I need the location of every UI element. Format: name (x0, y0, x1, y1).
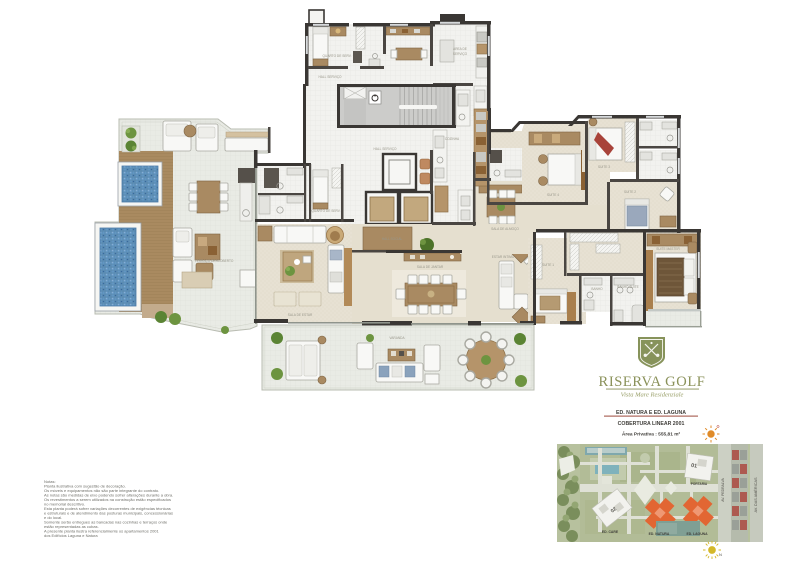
svg-text:HALL SOCIAL: HALL SOCIAL (382, 237, 403, 241)
svg-text:QUARTO DE SERV.: QUARTO DE SERV. (312, 209, 341, 213)
svg-text:SERVIÇO: SERVIÇO (453, 52, 468, 56)
svg-text:HALL SERVIÇO: HALL SERVIÇO (318, 75, 342, 79)
svg-text:RISERVA GOLF: RISERVA GOLF (599, 374, 706, 390)
svg-text:BANHO SUITE: BANHO SUITE (617, 285, 639, 289)
svg-text:ED. NATURA E ED. LAGUNA: ED. NATURA E ED. LAGUNA (616, 410, 686, 416)
svg-text:COBERTURA LINEAR 2001: COBERTURA LINEAR 2001 (618, 421, 685, 427)
svg-text:SUITE 2: SUITE 2 (624, 190, 636, 194)
svg-text:01: 01 (691, 463, 698, 470)
svg-text:ED. LAGUNA: ED. LAGUNA (686, 532, 708, 536)
svg-text:QUARTO DE SERV.: QUARTO DE SERV. (323, 54, 352, 58)
svg-text:N: N (719, 552, 722, 557)
svg-text:SUITE 4: SUITE 4 (547, 193, 559, 197)
svg-text:Área Privativa : 555,81 m²: Área Privativa : 555,81 m² (622, 431, 681, 438)
svg-text:dos Edifícios Laguna e Natura: dos Edifícios Laguna e Natura (44, 533, 98, 538)
svg-text:COZINHA: COZINHA (445, 137, 460, 141)
svg-text:SUITE 1: SUITE 1 (542, 263, 554, 267)
svg-text:HALL SERVIÇO: HALL SERVIÇO (373, 147, 397, 151)
svg-text:SALA DE JANTAR: SALA DE JANTAR (417, 265, 444, 269)
svg-text:ED. NATURA: ED. NATURA (649, 532, 670, 536)
svg-text:SALA DE ESTAR: SALA DE ESTAR (288, 313, 313, 317)
svg-text:SALA DE ALMOÇO: SALA DE ALMOÇO (491, 227, 519, 231)
svg-text:SUITE 3: SUITE 3 (598, 165, 610, 169)
svg-text:ED. CARE: ED. CARE (602, 530, 619, 534)
svg-text:PORTARIA: PORTARIA (691, 482, 708, 486)
svg-text:VARANDA: VARANDA (389, 336, 405, 340)
svg-text:AREA DE: AREA DE (453, 47, 467, 51)
svg-text:AV. PEDRALVA: AV. PEDRALVA (721, 478, 725, 502)
svg-text:BANHO: BANHO (591, 287, 603, 291)
svg-text:Vista Mare Residenziale: Vista Mare Residenziale (621, 392, 684, 399)
svg-text:ESTAR INTIMO: ESTAR INTIMO (492, 255, 515, 259)
svg-text:e estruturais e de atendimento: e estruturais e de atendimento das postu… (44, 511, 173, 516)
svg-text:SUITE MASTER: SUITE MASTER (656, 247, 680, 251)
svg-text:AV. DAS AMÉRICAS: AV. DAS AMÉRICAS (753, 477, 758, 512)
svg-text:TERRAÇO DESCOBERTO: TERRAÇO DESCOBERTO (195, 259, 234, 263)
